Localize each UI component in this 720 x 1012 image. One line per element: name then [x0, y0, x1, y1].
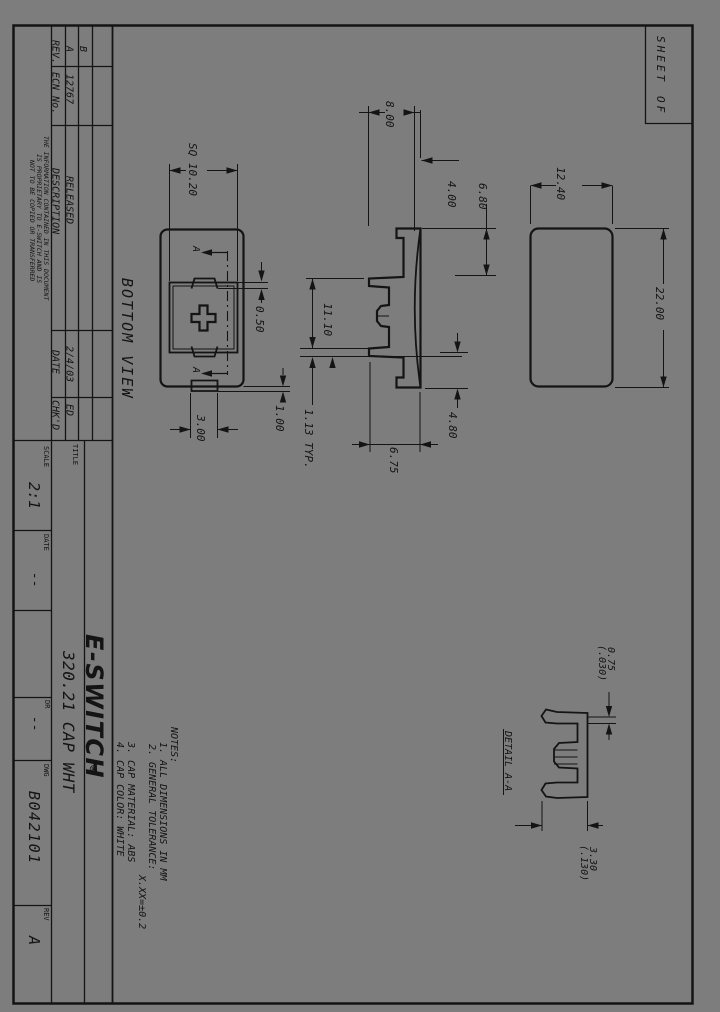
detail-boss-lines: [554, 750, 578, 764]
rev-header: REV.: [50, 40, 61, 64]
cap-plan-outline: [531, 229, 613, 387]
bottom-view: A A SQ 10.20 0.50 3.00 1.00 BOTTOM VIEW: [118, 143, 290, 442]
dim-4-80: 4.80: [446, 412, 459, 439]
cap-section-profile: [369, 229, 421, 388]
proprietary-note: THE INFORMATION CONTAINED IN THIS DOCUME…: [28, 136, 50, 301]
sq-dim-arrowheads: [170, 167, 238, 173]
scale-label: SCALE: [42, 446, 50, 467]
bottom-view-label: BOTTOM VIEW: [118, 278, 136, 399]
rev-b-letter: B: [77, 46, 88, 52]
rev-a-ecn: 12767: [64, 74, 75, 104]
dim-330-arrowheads: [531, 822, 599, 828]
section-view: 8.00 4.00 6.80 11.10 1.13 TYP. 6.75 4.80: [300, 101, 496, 474]
key-tab-bottom: [192, 347, 218, 357]
dim-480-lines: [425, 333, 468, 408]
recess-square-inner: [173, 286, 234, 349]
note-2-tolerance: X.XX=±0.2: [136, 874, 147, 929]
dim-11-10: 11.10: [321, 303, 334, 336]
note-2: 2. GENERAL TOLERANCE:: [146, 744, 157, 870]
section-flag-a-bottom: A: [190, 366, 201, 373]
date-label: DATE: [42, 534, 50, 551]
dim-400-arrowhead: [422, 157, 433, 163]
rev-label: REV: [42, 908, 50, 921]
sheet-of-box: [646, 26, 693, 124]
rev-a-description: RELEASED: [64, 176, 75, 224]
part-title: 320.21 CAP WHT: [59, 650, 78, 794]
rev-a-letter: A: [64, 45, 75, 52]
dim-22-00: 22.00: [653, 287, 666, 320]
drawing-sheet: SHEET OF REV. ECN No. DESCRIPTION DATE C…: [0, 0, 720, 1012]
sheet-label: SHEET: [654, 36, 667, 84]
dim-100-arrowheads: [280, 376, 286, 403]
dwg-label: DWG: [42, 764, 50, 777]
dim-1-13-typ: 1.13 TYP.: [302, 409, 315, 469]
clip-detail-profile: [542, 710, 588, 799]
note-1: 1. ALL DIMENSIONS IN MM: [157, 742, 168, 881]
note-line-3: NOT TO BE COPIED OR TRANSFERRED: [28, 159, 36, 281]
dim-100-lines: [218, 368, 290, 392]
notes-list: NOTES: 1. ALL DIMENSIONS IN MM 2. GENERA…: [114, 726, 179, 929]
dim-1-00: 1.00: [273, 405, 286, 432]
title-label: TITLE: [71, 444, 79, 465]
detail-label: DETAIL A-A: [502, 730, 513, 791]
dim-4-00: 4.00: [445, 181, 458, 208]
dim-sq-10-20: SQ 10.20: [186, 143, 199, 196]
rev-a-chkd: ED: [64, 404, 75, 416]
dim-0-50: 0.50: [253, 306, 266, 333]
notes-heading: NOTES:: [168, 726, 179, 763]
eswitch-logo: E-SWITCH: [80, 634, 108, 779]
chkd-header: CHK'D: [50, 400, 61, 430]
dim-0-75-inch: (.030): [596, 645, 607, 681]
dr-label: DR: [43, 700, 51, 709]
ecn-header: ECN No.: [50, 72, 61, 114]
dim-675-lines: [352, 362, 438, 452]
description-header: DESCRIPTION: [50, 167, 61, 235]
registered-mark: ®: [87, 764, 98, 774]
dim-050-arrowheads: [258, 271, 264, 301]
key-tab-top: [192, 279, 218, 289]
dim-330-lines: [515, 801, 603, 831]
rev-a-date: 2/4/03: [64, 346, 75, 382]
dim-8-00: 8.00: [383, 101, 396, 128]
of-label: OF: [654, 96, 667, 115]
dim-12-40: 12.40: [554, 167, 567, 200]
dim-075-arrowheads: [606, 706, 612, 735]
rev-value: A: [25, 935, 43, 945]
dr-value: --: [27, 716, 42, 732]
dim-3-30-inch: (.130): [578, 845, 589, 881]
dim-113-lines: [300, 349, 462, 406]
note-4: 4. CAP COLOR: WHITE: [114, 742, 125, 856]
note-3: 3. CAP MATERIAL: ABS: [125, 741, 136, 862]
stem-cross-hole: [192, 306, 216, 331]
dim-3-00: 3.00: [194, 414, 207, 442]
dim-113-arrowheads: [309, 357, 335, 368]
dim-480-arrowheads: [454, 342, 460, 400]
dim-6-75: 6.75: [387, 447, 400, 474]
detail-view: 0.75 (.030) 3.30 (.130) DETAIL A-A: [502, 645, 616, 881]
dim-1240-lines: [531, 186, 613, 225]
top-view: 12.40 22.00: [531, 167, 670, 388]
date-header: DATE: [50, 349, 61, 374]
section-flag-a-top: A: [190, 245, 201, 252]
scale-value: 2:1: [25, 482, 43, 509]
date-value: --: [27, 572, 42, 588]
title-block: TITLE SCALE 2:1 DATE -- DR -- DWG B04210…: [14, 441, 109, 1004]
dim-075-lines: [588, 692, 616, 740]
dim-6-80: 6.80: [476, 183, 489, 210]
sq-dim-extension-lines: [170, 164, 238, 281]
dwg-number: B042101: [25, 791, 43, 865]
